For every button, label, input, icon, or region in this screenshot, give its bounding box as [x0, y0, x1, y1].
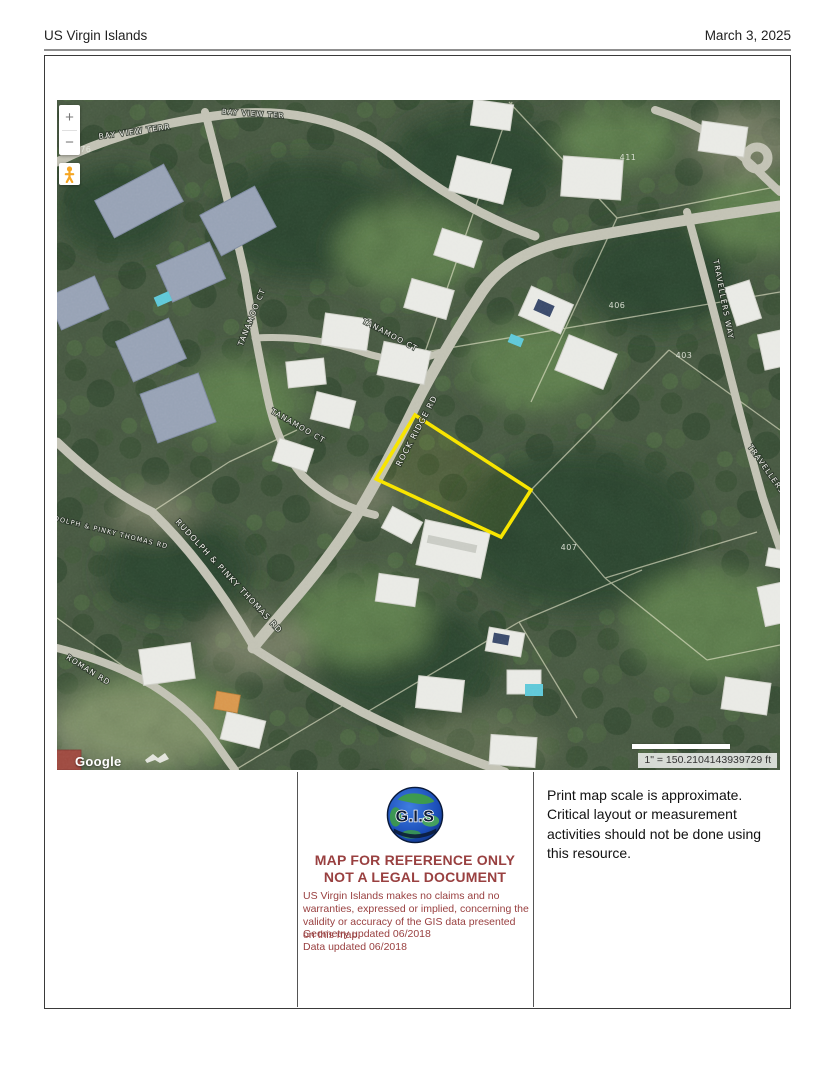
print-map-page: { "header": { "title": "US Virgin Island…	[0, 0, 835, 1080]
zoom-out-button[interactable]: −	[59, 131, 80, 156]
footer-divider-right	[533, 772, 534, 1007]
gis-logo: G.I.S	[386, 786, 444, 844]
scale-note-text: Print map scale is approximate. Critical…	[547, 786, 785, 863]
pnum: 407	[561, 543, 578, 552]
reference-notice-line1: MAP FOR REFERENCE ONLY	[297, 852, 533, 868]
data-updated-text: Data updated 06/2018	[303, 941, 407, 953]
map-scale-text: 1" = 150.2104143939729 ft	[638, 753, 777, 768]
footer-divider-left	[297, 772, 298, 1007]
map-scale-bar	[632, 744, 730, 749]
geometry-updated-text: Geometry updated 06/2018	[303, 928, 431, 940]
pegman-button[interactable]	[59, 163, 80, 185]
reference-notice-line2: NOT A LEGAL DOCUMENT	[297, 869, 533, 885]
map-viewport[interactable]: BAY VIEW TERRBAY VIEW TERTANAMOO CTTANAM…	[57, 100, 780, 770]
page-title: US Virgin Islands	[44, 28, 147, 43]
zoom-in-button[interactable]: +	[59, 105, 80, 130]
header-rule	[44, 49, 791, 51]
pnum: 406	[609, 301, 626, 310]
aerial-map: BAY VIEW TERRBAY VIEW TERTANAMOO CTTANAM…	[57, 100, 780, 770]
pnum: 403	[676, 351, 693, 360]
pnum: 411	[620, 153, 637, 162]
pegman-icon	[62, 166, 77, 183]
gis-logo-text: G.I.S	[396, 808, 435, 825]
page-date: March 3, 2025	[705, 28, 791, 43]
google-attribution[interactable]: Google	[75, 754, 122, 769]
zoom-control: + −	[59, 105, 80, 155]
